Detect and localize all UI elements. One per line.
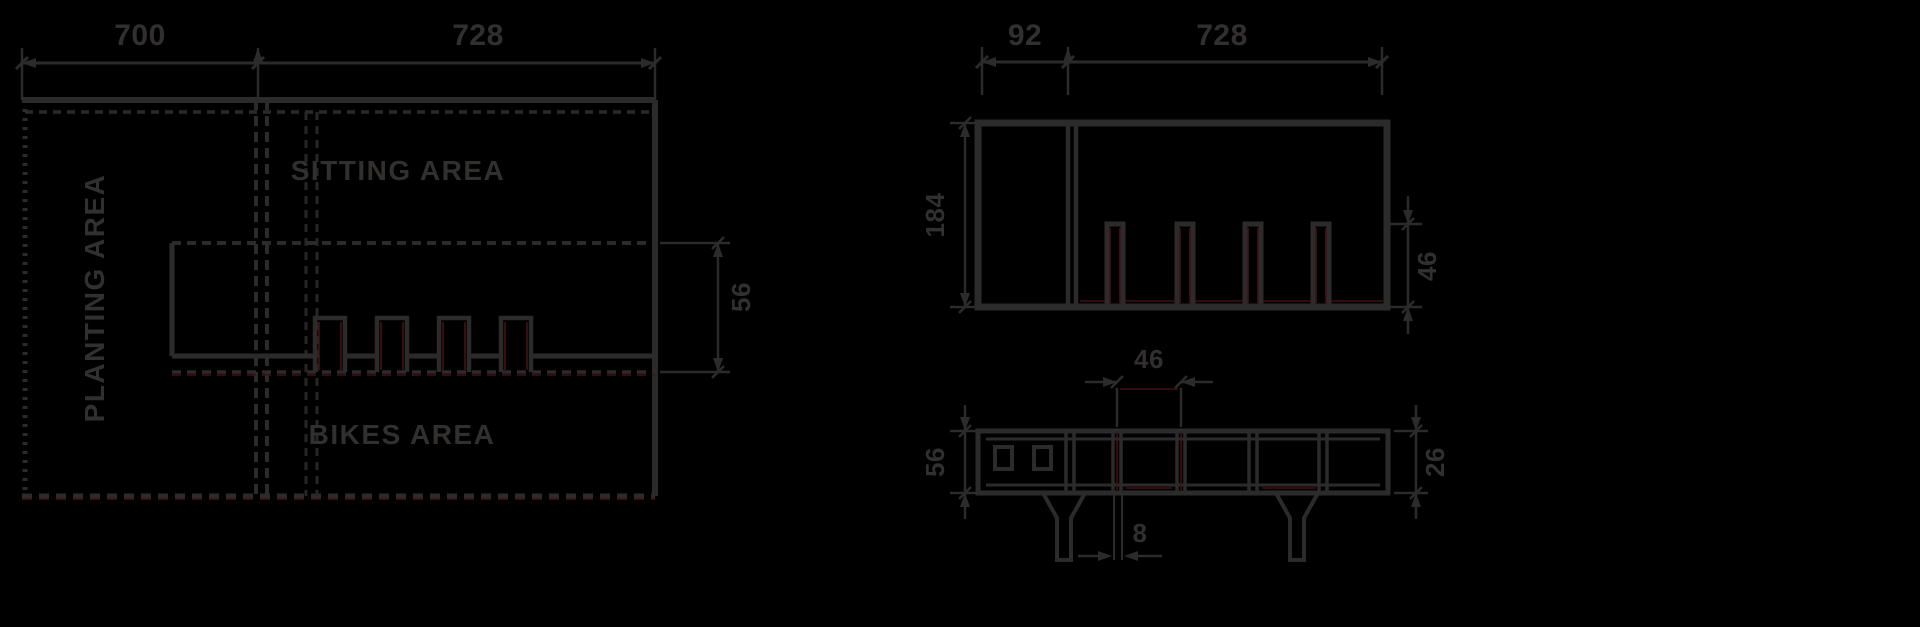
- dim-label-728-front: 728: [1196, 19, 1248, 52]
- front-top-dimension: 92 728: [976, 19, 1388, 95]
- side-legs: [1043, 493, 1318, 560]
- side-view: 46 8 26 56: [920, 344, 1450, 561]
- label-bikes-area: BIKES AREA: [309, 419, 496, 450]
- dim-label-profile-height: 26: [1420, 447, 1450, 477]
- dim-label-92: 92: [1008, 19, 1042, 52]
- side-bar: [978, 431, 1388, 493]
- front-view: 92 728 184 46: [920, 19, 1442, 334]
- dim-label-700: 700: [114, 19, 166, 52]
- dim-label-side-height: 56: [920, 447, 950, 477]
- technical-drawing: 700 728: [0, 0, 1920, 627]
- dim-label-panel-width: 46: [1134, 344, 1164, 374]
- dim-label-slot-height: 46: [1412, 251, 1442, 281]
- plan-top-dimension: 700 728: [16, 19, 661, 100]
- label-sitting-area: SITTING AREA: [291, 155, 506, 186]
- plan-rack-band: [172, 243, 655, 375]
- dim-label-728-plan: 728: [452, 19, 504, 52]
- front-right-dimension: 46: [1390, 196, 1442, 334]
- plan-area-labels: SITTING AREA BIKES AREA PLANTING AREA: [79, 155, 505, 450]
- side-left-dimension: 56: [920, 405, 976, 519]
- front-body: [978, 123, 1387, 307]
- side-wall-dimension: 8: [1078, 493, 1162, 561]
- plan-view: 700 728: [16, 19, 756, 499]
- drawing-canvas: 700 728: [0, 0, 1920, 627]
- side-right-dimension: 26: [1394, 405, 1450, 519]
- label-planting-area: PLANTING AREA: [79, 174, 110, 423]
- dim-label-wall-thickness: 8: [1133, 518, 1148, 548]
- front-left-dimension: 184: [920, 117, 976, 313]
- side-top-dimension: 46: [1085, 344, 1213, 427]
- dim-label-front-height: 184: [920, 193, 950, 238]
- dim-label-band-height: 56: [726, 282, 756, 312]
- plan-band-dimension: 56: [660, 237, 756, 378]
